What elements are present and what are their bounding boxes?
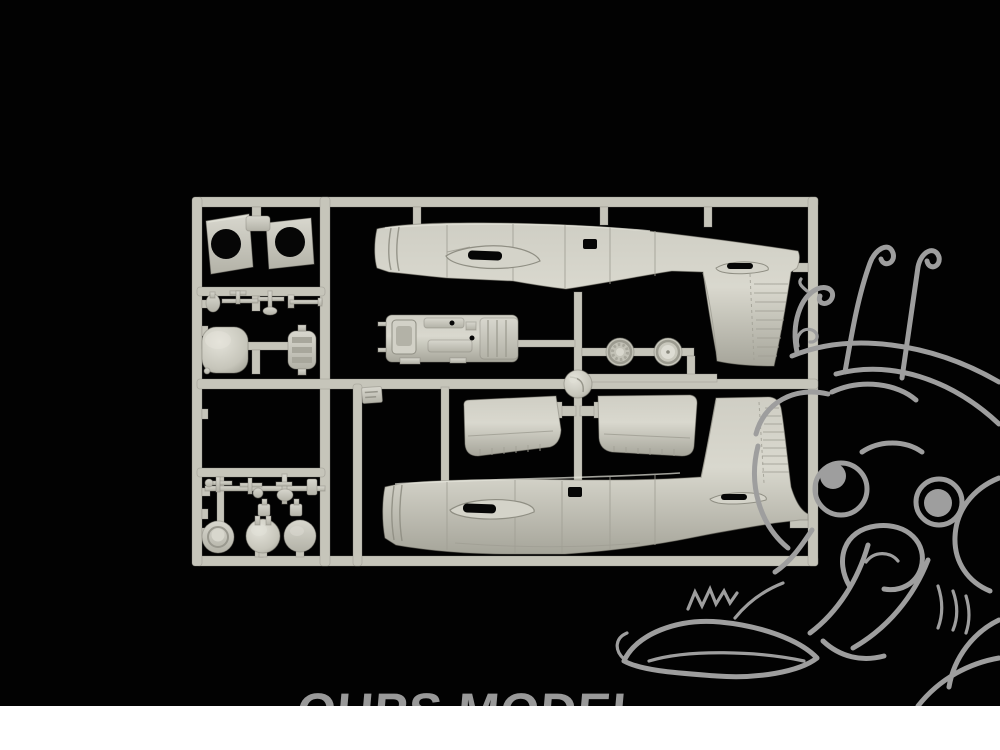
mascot-fur-tuft [688,589,737,609]
part-tailplane-left [464,396,561,456]
part-spinner [564,370,592,398]
part-cockpit-floor [378,315,575,364]
part-sprue-tag [361,386,382,403]
sprue-photo-art [0,0,1000,750]
part-round-caps [202,516,316,553]
mascot-pupil-left [820,463,846,489]
part-engine-cowling [202,327,248,374]
mascot-curl-right [902,251,939,378]
mascot-bill [624,621,817,676]
mascot-pupil-right [924,489,952,517]
mascot-curl-mid [845,247,893,372]
footer-white-strip [0,706,1000,750]
product-photo: OUPS MODEL [0,0,1000,750]
part-cowl-flap-panels [206,214,314,274]
mascot-brow-right [832,384,916,400]
part-tailplane-right [598,395,697,456]
part-ribbed-box [288,325,316,375]
